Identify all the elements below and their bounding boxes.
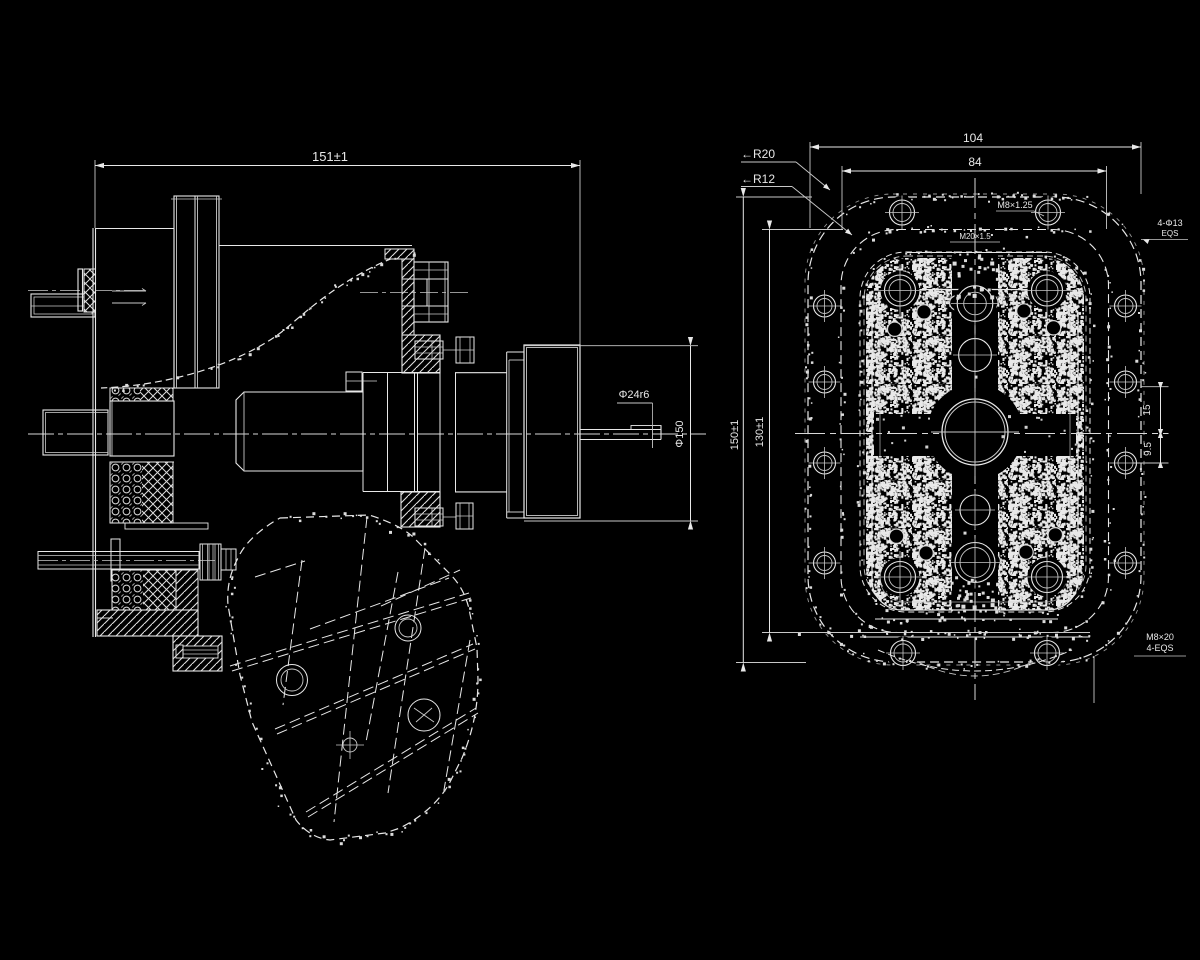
- svg-text:9.5: 9.5: [1143, 442, 1154, 456]
- svg-text:Φ24r6: Φ24r6: [619, 389, 650, 401]
- svg-text:←R20: ←R20: [741, 147, 775, 161]
- svg-text:←R12: ←R12: [741, 172, 775, 186]
- svg-text:M8×1.25: M8×1.25: [997, 200, 1032, 210]
- svg-text:M20×1.5: M20×1.5: [959, 232, 991, 241]
- svg-text:130±1: 130±1: [754, 417, 766, 448]
- svg-text:4-Φ13: 4-Φ13: [1157, 218, 1182, 228]
- svg-text:M8×20: M8×20: [1146, 632, 1174, 642]
- svg-text:15: 15: [1142, 404, 1153, 416]
- svg-text:EQS: EQS: [1162, 229, 1179, 238]
- svg-text:151±1: 151±1: [312, 149, 348, 164]
- svg-text:104: 104: [963, 131, 983, 145]
- svg-text:150±1: 150±1: [729, 420, 741, 451]
- svg-text:Φ150: Φ150: [674, 420, 686, 447]
- svg-text:4-EQS: 4-EQS: [1146, 643, 1173, 653]
- svg-text:84: 84: [968, 155, 982, 169]
